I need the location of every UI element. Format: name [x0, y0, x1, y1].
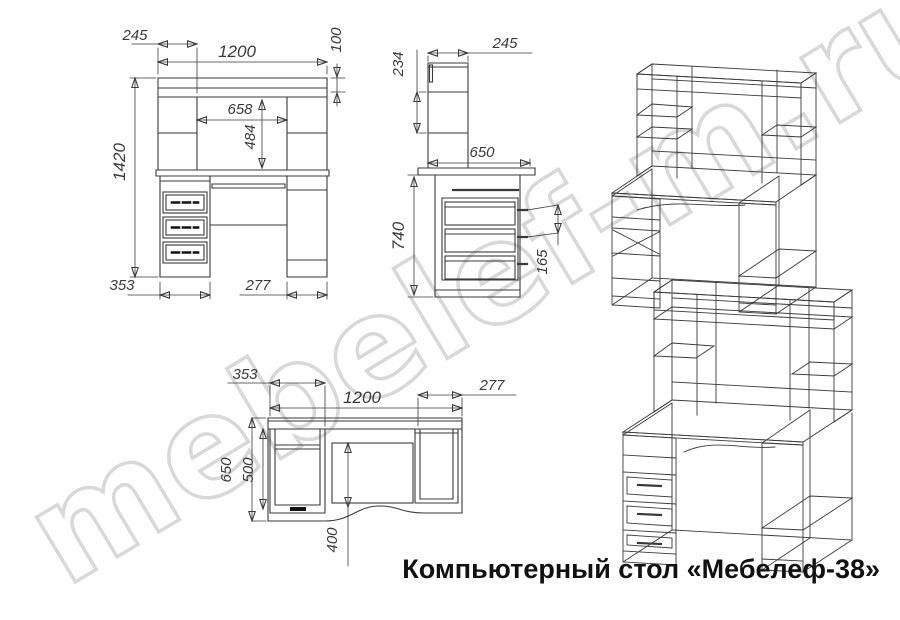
dim-front-1200: 1200 — [218, 42, 256, 61]
blueprint-page: { "title": "Компьютерный стол «Мебелеф-3… — [0, 0, 900, 600]
dim-side-650: 650 — [469, 144, 495, 161]
dim-side-234: 234 — [390, 51, 407, 77]
dim-top-277: 277 — [478, 377, 505, 394]
dim-front-100: 100 — [328, 27, 345, 53]
dim-front-484: 484 — [242, 124, 259, 149]
dim-top-400: 400 — [324, 527, 341, 553]
dim-side-165: 165 — [534, 249, 551, 275]
drawing-title: Компьютерный стол «Мебелеф-38» — [402, 554, 880, 585]
dim-top-1200: 1200 — [343, 388, 381, 407]
dim-front-1420: 1420 — [110, 143, 129, 181]
iso-view-upper — [612, 64, 816, 314]
side-view: 245 234 650 740 165 — [389, 35, 558, 297]
iso-view-lower — [623, 280, 852, 572]
technical-drawing: 245 1200 100 658 484 1420 353 277 245 23… — [0, 0, 900, 600]
dim-top-650: 650 — [218, 457, 235, 483]
dim-side-245: 245 — [491, 35, 518, 52]
dim-front-277: 277 — [244, 277, 271, 294]
dim-top-353: 353 — [232, 366, 258, 383]
dim-side-740: 740 — [389, 221, 408, 250]
top-view: 353 1200 277 650 500 400 — [218, 366, 516, 566]
dim-front-353: 353 — [109, 277, 135, 294]
front-view: 245 1200 100 658 484 1420 353 277 — [109, 27, 345, 299]
dim-top-500: 500 — [240, 457, 257, 483]
dim-front-245: 245 — [121, 27, 148, 44]
dim-front-658: 658 — [227, 101, 253, 118]
